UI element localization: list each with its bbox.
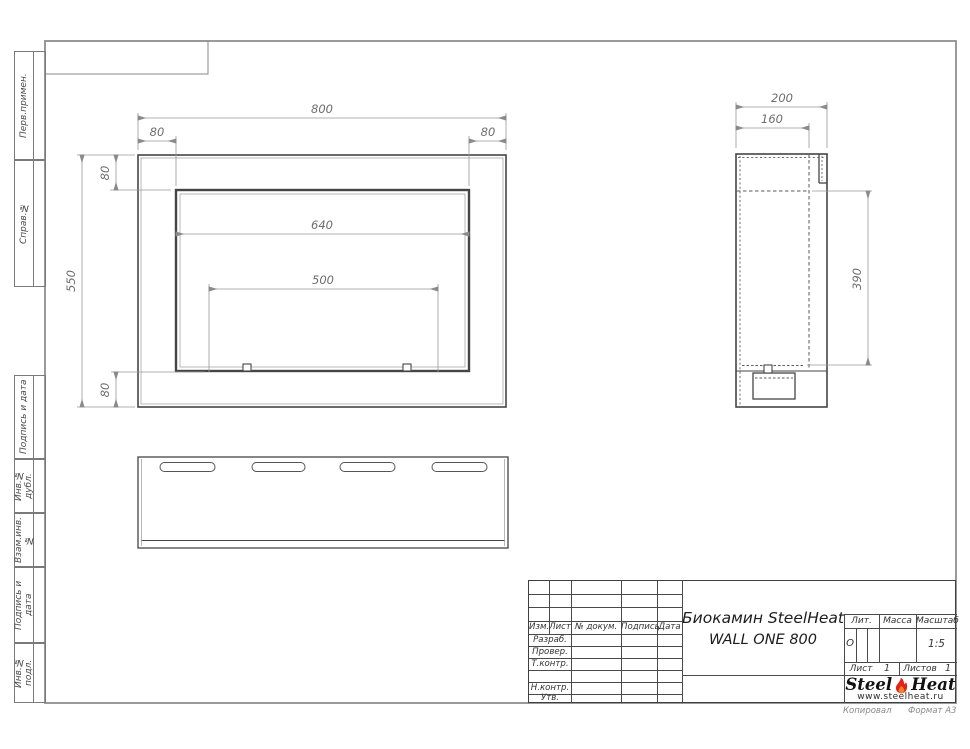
dim-front-opening-width: 640	[311, 218, 333, 232]
tb-col-data: Дата	[657, 621, 682, 633]
vent-slot-3	[340, 463, 395, 472]
document-title: Биокамин SteelHeat WALL ONE 800	[682, 583, 844, 673]
margin-box-vzam-inv: Взам.инв.№	[14, 513, 46, 567]
tb-col-podpis: Подпись	[621, 621, 657, 633]
tb-lit-value: О	[844, 638, 856, 650]
title-line-1: Биокамин SteelHeat	[682, 609, 844, 627]
dim-front-width: 800	[311, 102, 333, 116]
tb-listov-label: Листов	[903, 663, 937, 675]
logo-url: www.steelheat.ru	[857, 692, 943, 702]
dim-front-flange-top: 80	[98, 166, 112, 181]
burner-tab-right	[403, 364, 411, 371]
side-dim-lines	[736, 102, 872, 365]
tb-row-utv: Утв.	[529, 694, 571, 703]
tb-massa-label: Масса	[879, 615, 916, 627]
margin-label: Перв.примен.	[16, 52, 32, 159]
margin-box-sprav-no: Справ.№	[14, 160, 46, 287]
bottom-view	[138, 457, 508, 548]
vent-slot-1	[160, 463, 215, 472]
dim-front-flange-right: 80	[481, 125, 496, 139]
format-label: Формат А3	[908, 706, 956, 716]
tb-col-dokum: № докум.	[571, 621, 621, 633]
dim-front-burner-width: 500	[312, 273, 334, 287]
margin-label: Инв.№ подл.	[16, 644, 32, 702]
tb-row-tkontr: Т.контр.	[529, 658, 571, 670]
margin-label: Инв.№ дубл.	[16, 460, 32, 512]
dim-front-flange-bottom: 80	[98, 383, 112, 398]
tb-row-prover: Провер.	[529, 646, 571, 658]
steelheat-logo: Steel Heat www.steelheat.ru	[844, 675, 957, 703]
margin-box-podpis-data-2: Подпись и дата	[14, 567, 46, 643]
kopiroval-label: Копировал	[843, 706, 892, 716]
burner-box-side	[753, 373, 795, 399]
dim-side-depth: 200	[771, 91, 793, 105]
dim-side-inner-height: 390	[850, 268, 864, 290]
margin-label: Справ.№	[16, 161, 32, 286]
tb-masshtab-label: Масштаб	[916, 615, 957, 627]
logo-heat-text: Heat	[911, 677, 955, 692]
margin-label: Подпись и дата	[16, 376, 32, 458]
tb-list-label: Лист	[846, 663, 876, 675]
drawing-sheet: 800 80 80 80 550 640 500 80	[0, 0, 970, 749]
margin-box-inv-dubl: Инв.№ дубл.	[14, 459, 46, 513]
margin-box-podpis-data-1: Подпись и дата	[14, 375, 46, 459]
top-left-stamp-box	[45, 41, 208, 74]
burner-tab-side	[764, 365, 772, 373]
dim-front-height: 550	[64, 270, 78, 292]
title-line-2: WALL ONE 800	[709, 632, 817, 648]
tb-col-list: Лист	[549, 621, 571, 633]
tb-lit-label: Лит.	[844, 615, 879, 627]
tb-listov-value: 1	[941, 663, 955, 675]
vent-slot-2	[252, 463, 305, 472]
tb-row-razrab: Разраб.	[529, 634, 571, 646]
side-view	[736, 154, 827, 407]
title-block: Изм. Лист № докум. Подпись Дата Разраб. …	[528, 580, 956, 703]
tb-masshtab-value: 1:5	[916, 638, 957, 650]
vent-slot-4	[432, 463, 487, 472]
margin-label: Взам.инв.№	[16, 514, 32, 566]
margin-box-inv-podl: Инв.№ подл.	[14, 643, 46, 703]
tb-list-value: 1	[879, 663, 895, 675]
dim-side-inner-depth: 160	[761, 112, 783, 126]
margin-label: Подпись и дата	[16, 568, 32, 642]
burner-tab-left	[243, 364, 251, 371]
tb-col-izm: Изм.	[529, 621, 549, 633]
logo-steel-text: Steel	[845, 677, 892, 692]
dim-front-flange-left: 80	[150, 125, 165, 139]
margin-box-perv-primen: Перв.примен.	[14, 51, 46, 160]
